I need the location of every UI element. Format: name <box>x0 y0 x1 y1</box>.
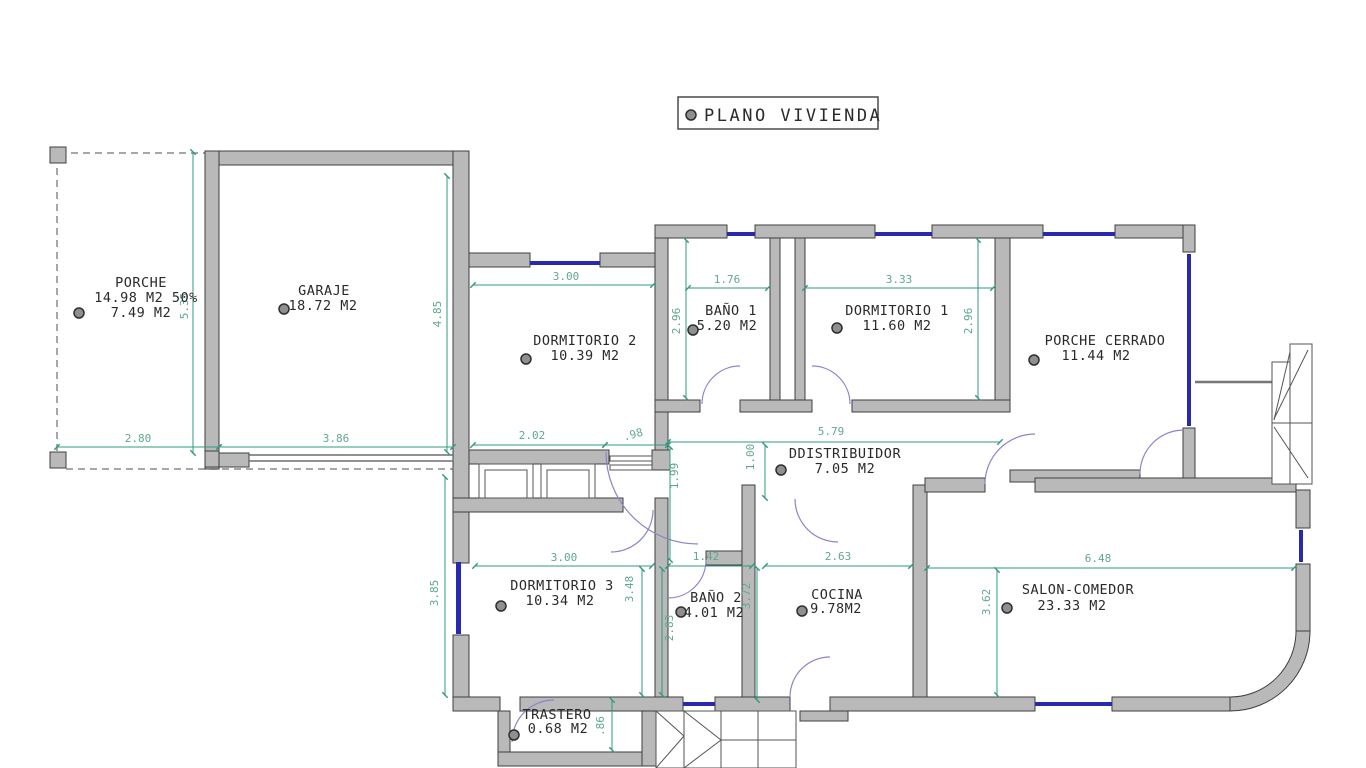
dim-dorm3-width: 3.00 <box>551 551 578 564</box>
dim-bano2-width: 1.42 <box>693 550 720 563</box>
room-area: 7.49 M2 <box>111 305 171 321</box>
dim-bano1-width: 1.76 <box>714 273 741 286</box>
room-name: DORMITORIO 3 <box>510 578 614 594</box>
dim-hall-height: 1.99 <box>668 463 681 490</box>
room-marker <box>776 465 786 475</box>
room-marker <box>1002 603 1012 613</box>
room-name: DORMITORIO 2 <box>533 333 637 349</box>
dim-bano1-height: 2.96 <box>670 308 683 335</box>
back-door-step <box>800 711 848 721</box>
room-area: 23.33 M2 <box>1037 598 1106 614</box>
window-porche-cerrado-right <box>1187 254 1191 426</box>
door-arc-cocina-back <box>790 657 830 697</box>
door-arc-cocina <box>795 499 838 542</box>
dim-dorm3-left-height: 3.85 <box>428 580 441 607</box>
floor-plan-drawing: 2.80 3.86 2.02 .98 5.79 3.00 1.76 3.33 3… <box>0 0 1366 768</box>
room-area: 7.05 M2 <box>815 461 875 477</box>
window-dormitorio3 <box>456 562 461 634</box>
window-dormitorio1 <box>875 232 932 236</box>
room-label-distribuidor: DDISTRIBUIDOR 7.05 M2 <box>776 446 901 477</box>
dim-distribuidor-pass: 1.00 <box>744 444 757 471</box>
garage-door <box>249 455 453 461</box>
room-name: GARAJE <box>298 283 350 299</box>
room-marker <box>496 601 506 611</box>
porch-post <box>50 147 66 163</box>
room-name: BAÑO 1 <box>705 302 757 319</box>
window-bano2 <box>683 702 715 706</box>
dim-garaje-width: 3.86 <box>323 432 350 445</box>
room-marker <box>797 606 807 616</box>
room-label-dormitorio3: DORMITORIO 3 10.34 M2 <box>496 578 614 611</box>
room-label-bano1: BAÑO 1 5.20 M2 <box>688 302 757 335</box>
room-label-porche-cerrado: PORCHE CERRADO 11.44 M2 <box>1029 333 1165 365</box>
room-area: 0.68 M2 <box>528 721 588 737</box>
room-area: 14.98 M2 50% <box>94 290 198 306</box>
window-salon-right <box>1299 530 1303 562</box>
dim-bano2-height: 2.83 <box>663 615 676 642</box>
dim-porche-width: 2.80 <box>125 432 152 445</box>
room-area: 9.78M2 <box>810 601 862 617</box>
window-bano1 <box>727 232 755 236</box>
door-arc-porche-cerrado <box>1140 430 1184 474</box>
room-name: DDISTRIBUIDOR <box>789 446 902 462</box>
room-name: PORCHE CERRADO <box>1045 333 1166 349</box>
porch-post <box>50 452 66 468</box>
entrance-stairs <box>656 711 796 768</box>
dim-cocina-width: 2.63 <box>825 550 852 563</box>
window-dormitorio2 <box>530 261 600 265</box>
room-area: 11.60 M2 <box>862 318 931 334</box>
dim-entrance-door: .98 <box>622 426 645 444</box>
exterior-side-stairs <box>1195 344 1312 484</box>
room-name: SALON-COMEDOR <box>1022 582 1135 598</box>
room-area: 10.39 M2 <box>550 348 619 364</box>
dim-hall-width: 2.02 <box>519 429 546 442</box>
page-title: PLANO VIVIENDA <box>704 106 882 126</box>
room-area: 5.20 M2 <box>697 318 757 334</box>
dim-trastero-height: .86 <box>594 716 607 736</box>
room-area: 10.34 M2 <box>525 593 594 609</box>
room-label-garaje: GARAJE 18.72 M2 <box>279 283 358 314</box>
room-label-dormitorio2: DORMITORIO 2 10.39 M2 <box>521 333 637 364</box>
dim-dorm1-height: 2.96 <box>962 308 975 335</box>
room-label-dormitorio1: DORMITORIO 1 11.60 M2 <box>832 303 949 334</box>
entrance-door <box>610 456 652 470</box>
room-marker <box>832 323 842 333</box>
dim-salon-height: 3.62 <box>980 589 993 616</box>
dim-garaje-height: 4.85 <box>431 301 444 328</box>
room-marker <box>521 354 531 364</box>
dim-dorm2-width: 3.00 <box>553 270 580 283</box>
title-marker <box>686 110 696 120</box>
dim-salon-width: 6.48 <box>1085 552 1112 565</box>
room-area: 18.72 M2 <box>288 298 357 314</box>
room-marker <box>74 308 84 318</box>
title-block: PLANO VIVIENDA <box>678 97 882 129</box>
room-marker <box>1029 355 1039 365</box>
room-name: PORCHE <box>115 275 167 291</box>
dim-distribuidor-width: 5.79 <box>818 425 845 438</box>
door-arc-bano1 <box>702 366 740 404</box>
dimension-lines <box>57 152 1294 750</box>
room-name: DORMITORIO 1 <box>845 303 949 319</box>
floor-plan-canvas: 2.80 3.86 2.02 .98 5.79 3.00 1.76 3.33 3… <box>0 0 1366 768</box>
room-area: 4.01 M2 <box>684 605 744 621</box>
closets <box>479 464 595 498</box>
room-label-trastero: TRASTERO 0.68 M2 <box>509 707 592 740</box>
dim-dorm3-height: 3.48 <box>623 576 636 603</box>
dim-dorm1-width: 3.33 <box>886 273 913 286</box>
room-marker <box>509 730 519 740</box>
room-label-salon: SALON-COMEDOR 23.33 M2 <box>1002 582 1134 614</box>
window-salon-bottom <box>1035 702 1112 706</box>
room-name: BAÑO 2 <box>690 589 742 606</box>
door-arc-dormitorio1 <box>812 366 850 404</box>
room-label-cocina: COCINA 9.78M2 <box>797 587 863 617</box>
room-area: 11.44 M2 <box>1061 348 1130 364</box>
window-porche-cerrado-top <box>1043 232 1115 236</box>
